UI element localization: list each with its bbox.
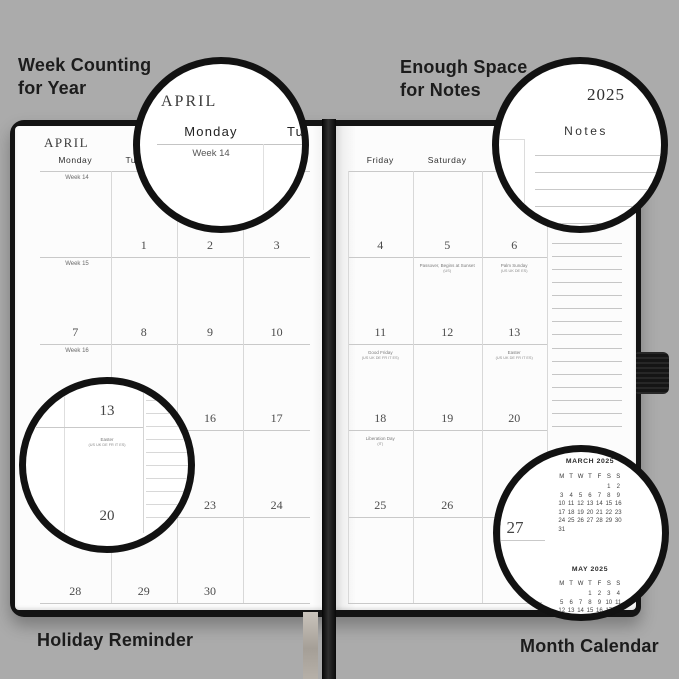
mini-date: 21 [595,509,604,518]
mini-date: 4 [566,492,575,501]
date-cell: 3 [262,238,292,253]
mini-date [585,526,594,535]
date-cell: 19 [432,411,462,426]
holiday-annotation: Palm Sunday(US UK DE ES) [482,263,546,274]
mini-date: 3 [557,492,566,501]
mini-calendar-week-row: 3456789 [557,492,623,501]
mini-day-letter: F [595,580,604,589]
date-cell: 12 [432,325,462,340]
mini-day-letter: S [604,473,613,482]
magnified-notes-line [146,504,191,505]
mini-date: 16 [595,607,604,616]
holiday-countries: (US UK DE FR IT ES) [482,356,546,361]
mini-date: 23 [614,509,623,518]
date-cell: 4 [365,238,395,253]
mini-date: 22 [585,616,594,622]
magnified-day-header-partial: Tu [287,124,304,139]
notes-ruled-line [552,243,622,244]
notes-ruled-line [552,256,622,257]
mini-calendar-week-row: 1234 [557,590,623,599]
mini-date: 8 [604,492,613,501]
notes-ruled-line [552,413,622,414]
mini-date: 24 [557,517,566,526]
mini-calendar-week-row: 12131415161718 [557,607,623,616]
mini-date [595,483,604,492]
week-number-label: Week 15 [47,261,107,267]
mini-date: 1 [585,590,594,599]
date-cell: 2 [195,238,225,253]
mini-day-letter: S [604,580,613,589]
mini-date: 6 [585,492,594,501]
magnified-date-13: 13 [77,403,137,420]
label-week-counting-line2: for Year [18,77,151,100]
mini-day-letter: W [576,473,585,482]
notes-ruled-line [552,334,622,335]
mini-date [566,526,575,535]
notes-ruled-line [552,295,622,296]
mini-date: 18 [566,509,575,518]
week-row-line [348,603,547,604]
mini-date: 20 [566,616,575,622]
mini-date: 17 [557,509,566,518]
holiday-annotation: Easter(US UK DE FR IT ES) [482,350,546,361]
magnified-notes-line [146,517,191,518]
mini-date: 9 [595,599,604,608]
date-cell: 23 [195,498,225,513]
mini-date: 7 [595,492,604,501]
mini-day-letter: T [566,473,575,482]
magnified-month-title: APRIL [161,93,217,111]
magnified-notes-title: Notes [546,124,626,138]
mini-date: 13 [566,607,575,616]
label-enough-space: Enough Space for Notes [400,56,527,102]
notes-ruled-line [552,361,622,362]
mini-date [604,526,613,535]
magnified-cell-corner-line [499,139,524,140]
date-cell: 30 [195,584,225,599]
mini-day-letter: S [614,473,623,482]
mini-day-letter: T [585,473,594,482]
notes-ruled-line [552,282,622,283]
mini-date: 15 [585,607,594,616]
mini-day-letter: W [576,580,585,589]
mini-date [576,483,585,492]
column-line [243,171,244,603]
mini-date: 4 [614,590,623,599]
mini-calendar-week-row: 10111213141516 [557,500,623,509]
magnified-notes-line [535,223,661,224]
mini-date: 5 [576,492,585,501]
mini-calendar-day-header: MTWTFSS [557,580,623,589]
mini-date: 6 [566,599,575,608]
week-number-label: Week 14 [47,175,107,181]
mini-date: 29 [604,517,613,526]
magnified-notes-divider-line [524,139,525,226]
magnified-notes-line [146,426,191,427]
mini-calendar-title: MAY 2025 [557,566,623,573]
mini-date: 14 [576,607,585,616]
date-cell: 13 [499,325,529,340]
mini-day-letter: S [614,580,623,589]
date-cell: 29 [129,584,159,599]
mini-day-letter: F [595,473,604,482]
label-week-counting-line1: Week Counting [18,54,151,77]
holiday-countries: (US UK DE ES) [482,269,546,274]
mini-date [595,526,604,535]
holiday-annotation: Good Friday(US UK DE FR IT ES) [348,350,412,361]
date-cell: 6 [499,238,529,253]
mini-calendar-week-row: 12 [557,483,623,492]
notes-ruled-line [552,387,622,388]
magnifier-week-counting: APRIL Monday Tu Week 14 [133,57,309,233]
notes-ruled-line [552,348,622,349]
magnified-column-line [263,144,264,210]
mini-date [557,483,566,492]
magnified-notes-line [146,439,191,440]
ribbon-bookmark [303,612,318,679]
mini-day-letter: M [557,580,566,589]
label-week-counting: Week Counting for Year [18,54,151,100]
planner-product-image: APRIL MondayTuesdayWednesdayThursday1237… [0,0,679,679]
mini-day-letter: T [566,580,575,589]
mini-date: 11 [566,500,575,509]
magnified-notes-line [146,413,191,414]
date-cell: 11 [365,325,395,340]
mini-date [576,526,585,535]
week-row-line [348,344,547,345]
magnified-notes-line [535,172,661,173]
mini-calendar-title: MARCH 2025 [557,458,623,465]
mini-date: 27 [585,517,594,526]
date-cell: 7 [60,325,90,340]
mini-date: 16 [614,500,623,509]
column-line [413,171,414,603]
label-enough-space-line2: for Notes [400,79,527,102]
holiday-annotation: Passover, Begins at Sunset(US) [415,263,479,274]
mini-date: 13 [585,500,594,509]
mini-date [557,590,566,599]
notes-ruled-line [552,321,622,322]
date-cell: 10 [262,325,292,340]
date-cell: 20 [499,411,529,426]
magnified-notes-line [535,155,661,156]
date-cell: 28 [60,584,90,599]
mini-date [566,590,575,599]
holiday-countries: (IT) [348,442,412,447]
week-row-line [40,257,310,258]
mini-date: 19 [576,509,585,518]
mini-date: 10 [604,599,613,608]
magnified-notes-line [146,465,191,466]
notes-ruled-line [552,308,622,309]
mini-date: 30 [614,517,623,526]
date-cell: 25 [365,498,395,513]
date-cell: 17 [262,411,292,426]
column-line [348,171,349,603]
magnified-holiday-countries: (US UK DE FR IT ES) [67,443,147,447]
day-header-friday: Friday [345,155,415,165]
column-line [482,171,483,603]
notes-ruled-line [552,400,622,401]
day-header-monday: Monday [40,155,110,165]
day-header-saturday: Saturday [412,155,482,165]
magnified-notes-line [146,452,191,453]
mini-date: 17 [604,607,613,616]
mini-date: 31 [557,526,566,535]
mini-date [585,483,594,492]
label-month-calendar: Month Calendar [520,635,659,658]
magnifier-month-calendar: 27 MARCH 2025MTWTFSS12345678910111213141… [493,445,669,621]
mini-date: 15 [604,500,613,509]
date-cell: 5 [432,238,462,253]
mini-date: 21 [576,616,585,622]
week-row-line [40,344,310,345]
mini-date: 9 [614,492,623,501]
mini-calendar-week-row: 567891011 [557,599,623,608]
magnified-holiday-name: Easter [77,437,137,442]
date-cell: 16 [195,411,225,426]
magnified-notes-line [146,400,191,401]
label-enough-space-line1: Enough Space [400,56,527,79]
mini-date [566,483,575,492]
magnifier-holiday: 13 Easter (US UK DE FR IT ES) 20 [19,377,195,553]
mini-date: 23 [595,616,604,622]
holiday-countries: (US UK DE FR IT ES) [348,356,412,361]
date-cell: 26 [432,498,462,513]
magnified-notes-line [146,478,191,479]
date-cell: 8 [129,325,159,340]
date-cell: 24 [262,498,292,513]
mini-date: 5 [557,599,566,608]
mini-date: 2 [614,483,623,492]
week-row-line [348,257,547,258]
mini-date: 1 [604,483,613,492]
mini-date: 2 [595,590,604,599]
week-row-line [348,430,547,431]
week-row-line [40,603,310,604]
mini-date: 3 [604,590,613,599]
holiday-countries: (US) [415,269,479,274]
magnified-header-line [157,144,309,145]
elastic-band [322,119,336,679]
mini-date: 25 [566,517,575,526]
column-line [177,171,178,603]
magnified-column-line-left [64,390,65,533]
magnified-notes-line [535,189,661,190]
mini-date: 11 [614,599,623,608]
magnified-row-line-lower [500,602,542,603]
mini-date: 14 [595,500,604,509]
pen-loop [636,352,669,394]
mini-calendar-week-row: 24252627282930 [557,517,623,526]
mini-date: 8 [585,599,594,608]
magnified-date-20: 20 [77,508,137,525]
magnified-row-line [36,427,143,428]
magnified-notes-line [146,491,191,492]
notes-ruled-line [552,374,622,375]
holiday-annotation: Liberation Day(IT) [348,436,412,447]
mini-day-letter: M [557,473,566,482]
date-cell: 18 [365,411,395,426]
magnified-year: 2025 [587,85,625,105]
mini-date: 10 [557,500,566,509]
mini-date: 20 [585,509,594,518]
week-number-label: Week 16 [47,348,107,354]
mini-date [576,590,585,599]
month-title: APRIL [44,135,89,151]
mini-date: 22 [604,509,613,518]
mini-date: 19 [557,616,566,622]
label-holiday-reminder: Holiday Reminder [37,629,193,652]
magnified-column-line-right [143,390,144,533]
magnified-date-27: 27 [493,518,540,538]
magnified-week-label: Week 14 [171,148,251,159]
mini-date: 26 [576,517,585,526]
mini-calendar-week-row: 17181920212223 [557,509,623,518]
notes-ruled-line [552,426,622,427]
mini-date: 28 [595,517,604,526]
mini-date [614,526,623,535]
mini-date: 7 [576,599,585,608]
notes-ruled-line [552,269,622,270]
mini-calendar-week-row: 31 [557,526,623,535]
date-cell: 9 [195,325,225,340]
mini-calendar-day-header: MTWTFSS [557,473,623,482]
magnified-day-header: Monday [171,124,251,139]
magnified-row-line-upper [500,540,545,541]
mini-date: 12 [557,607,566,616]
mini-date: 12 [576,500,585,509]
mini-day-letter: T [585,580,594,589]
date-cell: 1 [129,238,159,253]
magnified-notes-line [535,206,661,207]
